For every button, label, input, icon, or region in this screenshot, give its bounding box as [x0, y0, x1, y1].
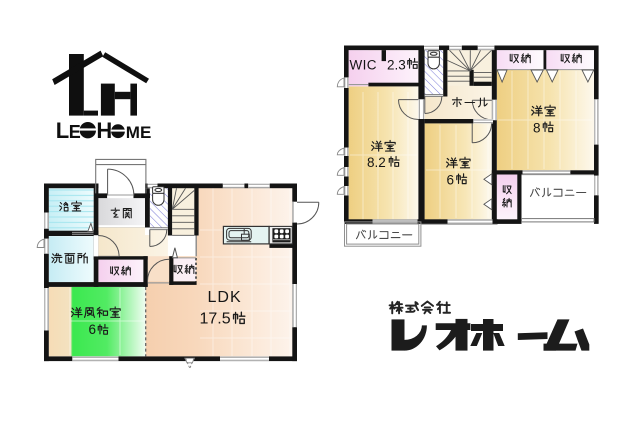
svg-text:6: 6	[447, 173, 455, 188]
svg-text:L: L	[56, 118, 69, 143]
svg-text:17.5: 17.5	[200, 311, 231, 328]
svg-text:ME: ME	[126, 123, 152, 142]
svg-text:LDK: LDK	[208, 289, 242, 306]
svg-text:H: H	[96, 118, 112, 143]
svg-text:2.3: 2.3	[387, 58, 406, 73]
svg-text:WIC: WIC	[350, 58, 377, 73]
svg-text:8: 8	[533, 121, 541, 136]
svg-text:6: 6	[89, 322, 97, 337]
svg-text:8.2: 8.2	[367, 155, 386, 170]
svg-text:E: E	[69, 122, 81, 142]
